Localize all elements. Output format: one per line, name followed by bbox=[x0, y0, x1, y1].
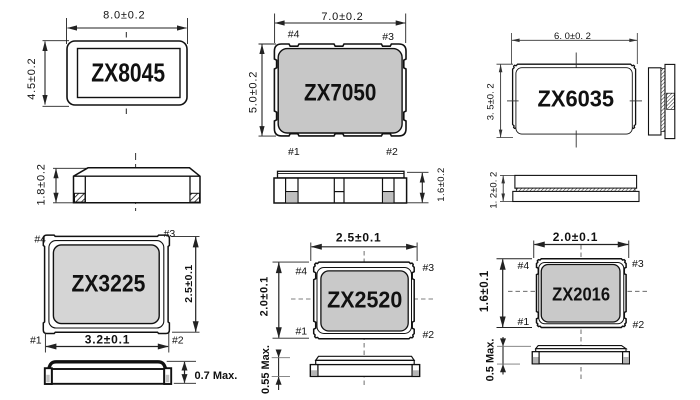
svg-text:3. 5±0. 2: 3. 5±0. 2 bbox=[485, 83, 496, 120]
svg-text:ZX8045: ZX8045 bbox=[91, 57, 165, 87]
svg-text:#4: #4 bbox=[518, 260, 530, 272]
svg-text:0.55 Max.: 0.55 Max. bbox=[260, 345, 272, 394]
svg-text:ZX3225: ZX3225 bbox=[71, 270, 145, 297]
svg-text:2.0±0.1: 2.0±0.1 bbox=[553, 230, 599, 244]
svg-text:#4: #4 bbox=[288, 29, 300, 41]
svg-text:#3: #3 bbox=[632, 258, 644, 270]
svg-text:#1: #1 bbox=[518, 316, 530, 328]
svg-text:#4: #4 bbox=[295, 265, 307, 277]
svg-text:#1: #1 bbox=[288, 146, 300, 158]
svg-text:#1: #1 bbox=[30, 334, 42, 346]
svg-text:ZX2520: ZX2520 bbox=[327, 287, 402, 313]
svg-text:3.2±0.1: 3.2±0.1 bbox=[85, 333, 131, 347]
svg-text:#2: #2 bbox=[386, 146, 398, 158]
svg-text:ZX2016: ZX2016 bbox=[552, 285, 610, 306]
svg-text:1.6±0.1: 1.6±0.1 bbox=[479, 270, 491, 312]
svg-text:2.5±0.1: 2.5±0.1 bbox=[336, 230, 382, 244]
svg-text:4.5±0.2: 4.5±0.2 bbox=[26, 58, 38, 100]
svg-text:0.5 Max.: 0.5 Max. bbox=[484, 339, 496, 382]
svg-text:#3: #3 bbox=[422, 262, 434, 274]
svg-text:5.0±0.2: 5.0±0.2 bbox=[248, 71, 260, 113]
svg-text:#2: #2 bbox=[172, 334, 184, 346]
svg-text:1. 2±0. 2: 1. 2±0. 2 bbox=[489, 172, 500, 209]
svg-text:ZX6035: ZX6035 bbox=[538, 85, 615, 111]
svg-text:#3: #3 bbox=[164, 228, 176, 240]
svg-text:2.5±0.1: 2.5±0.1 bbox=[183, 264, 195, 302]
svg-text:1.6±0.2: 1.6±0.2 bbox=[436, 167, 447, 201]
svg-text:#1: #1 bbox=[295, 325, 307, 337]
svg-text:1.8±0.2: 1.8±0.2 bbox=[35, 163, 47, 205]
svg-text:#2: #2 bbox=[422, 329, 434, 341]
svg-text:7.0±0.2: 7.0±0.2 bbox=[321, 11, 363, 23]
svg-text:#3: #3 bbox=[382, 31, 394, 43]
svg-text:#4: #4 bbox=[34, 234, 46, 246]
svg-text:8.0±0.2: 8.0±0.2 bbox=[103, 10, 145, 22]
svg-text:#2: #2 bbox=[633, 319, 645, 331]
svg-text:0.7 Max.: 0.7 Max. bbox=[195, 370, 238, 382]
svg-text:ZX7050: ZX7050 bbox=[304, 80, 376, 107]
svg-text:2.0±0.1: 2.0±0.1 bbox=[259, 276, 271, 316]
